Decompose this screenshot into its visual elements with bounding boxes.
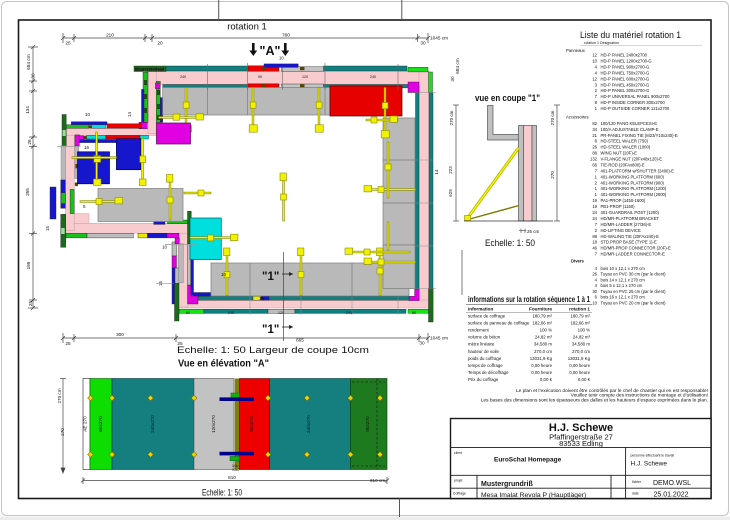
svg-text:10: 10: [162, 245, 168, 250]
svg-text:88: 88: [592, 234, 597, 239]
svg-text:25: 25: [65, 341, 71, 346]
svg-text:10: 10: [85, 112, 91, 117]
svg-text:PA1-PROP (1450-1600): PA1-PROP (1450-1600): [601, 198, 646, 203]
svg-text:810 cm: 810 cm: [370, 478, 385, 483]
svg-text:100/120 PANO KELEPCESI-E: 100/120 PANO KELEPCESI-E: [601, 121, 658, 126]
svg-text:401-WORKING PLATFORM (900): 401-WORKING PLATFORM (900): [601, 181, 665, 186]
svg-text:surface de coffrage: surface de coffrage: [468, 314, 506, 319]
svg-text:180,79 m²: 180,79 m²: [570, 314, 590, 319]
svg-text:240x270: 240x270: [306, 415, 311, 433]
svg-text:Panneaux: Panneaux: [566, 48, 586, 53]
svg-text:HD-P INSIDE CORNER 300x2700: HD-P INSIDE CORNER 300x2700: [601, 100, 666, 105]
svg-text:Divers: Divers: [571, 259, 584, 264]
svg-text:Echelle: 1: 50: Echelle: 1: 50: [485, 238, 535, 248]
svg-text:25.01.2022: 25.01.2022: [653, 491, 688, 498]
svg-text:255: 255: [25, 188, 30, 196]
svg-text:0,00 heure: 0,00 heure: [569, 363, 590, 368]
svg-text:223: 223: [448, 166, 453, 174]
svg-text:26: 26: [27, 139, 32, 145]
svg-text:30: 30: [420, 41, 426, 46]
svg-text:30: 30: [419, 341, 425, 346]
svg-text:Tuyau en PVC 20 cm (par le cli: Tuyau en PVC 20 cm (par le client): [601, 301, 667, 306]
svg-text:date: date: [632, 492, 639, 496]
svg-text:240: 240: [228, 311, 234, 315]
svg-text:HD-P OUTSIDE CORNER 121x2700: HD-P OUTSIDE CORNER 121x2700: [601, 106, 670, 111]
svg-text:information: information: [468, 307, 493, 312]
svg-text:401-WORKING PLATFORM (600): 401-WORKING PLATFORM (600): [601, 175, 665, 180]
svg-text:182,66 m²: 182,66 m²: [532, 321, 552, 326]
svg-text:90: 90: [258, 75, 262, 79]
svg-text:240: 240: [346, 311, 352, 315]
svg-text:240: 240: [180, 75, 186, 79]
svg-text:90x270: 90x270: [249, 416, 254, 432]
svg-text:684 cm: 684 cm: [455, 58, 460, 73]
svg-text:temps de coffrage: temps de coffrage: [468, 363, 503, 368]
svg-text:240x270: 240x270: [150, 415, 155, 433]
svg-text:Tuyau en PVC 30 cm (par le cli: Tuyau en PVC 30 cm (par le client): [601, 272, 667, 277]
svg-text:100 %: 100 %: [540, 328, 552, 333]
svg-text:88: 88: [592, 151, 597, 156]
svg-text:30: 30: [31, 73, 36, 79]
svg-text:46: 46: [592, 246, 597, 251]
svg-text:810: 810: [228, 475, 236, 480]
svg-text:EuroSchal: EuroSchal: [135, 68, 164, 72]
svg-text:34,580 m: 34,580 m: [534, 342, 552, 347]
svg-text:14: 14: [434, 169, 439, 175]
svg-text:120: 120: [278, 311, 284, 315]
svg-text:surface du panneau de coffrage: surface du panneau de coffrage: [468, 321, 530, 326]
svg-text:34: 34: [592, 127, 597, 132]
svg-text:Le plan et l’exécution doivent: Le plan et l’exécution doivent être cont…: [516, 388, 708, 394]
svg-text:182,66 m²: 182,66 m²: [570, 321, 590, 326]
svg-text:30: 30: [592, 289, 597, 294]
svg-text:V-FLANGE NUT (20Fx48x120)-E: V-FLANGE NUT (20Fx48x120)-E: [601, 157, 663, 162]
svg-text:401-PLATFORM w/SHUTTER (2400)-: 401-PLATFORM w/SHUTTER (2400)-E: [601, 169, 675, 174]
svg-text:personne effectuant le travail: personne effectuant le travail: [631, 454, 675, 458]
svg-text:13031,9 Kg: 13031,9 Kg: [568, 356, 591, 361]
svg-text:1045 cm: 1045 cm: [430, 36, 448, 41]
svg-text:210: 210: [106, 33, 114, 38]
svg-text:Veuillez tenir compte des inst: Veuillez tenir compte des instructions d…: [571, 393, 708, 399]
svg-text:0,00 €: 0,00 €: [578, 377, 591, 382]
svg-text:26: 26: [592, 145, 597, 150]
svg-text:bois 5 x 12,1 x 270 cm: bois 5 x 12,1 x 270 cm: [601, 283, 643, 288]
svg-text:HD-LIFTING DEVICE: HD-LIFTING DEVICE: [601, 228, 641, 233]
svg-text:vue en coupe "1": vue en coupe "1": [475, 93, 540, 104]
svg-text:informations sur la rotation: informations sur la rotation séquence 1 …: [468, 294, 590, 304]
svg-text:12: 12: [592, 77, 597, 82]
svg-text:401-WORKING PLATFORM (1200): 401-WORKING PLATFORM (1200): [601, 186, 667, 191]
svg-text:60x270: 60x270: [98, 416, 103, 432]
svg-text:HD-P PANEL 300x2700-G: HD-P PANEL 300x2700-G: [601, 88, 650, 93]
svg-text:HD-P PANEL 750x2700-G: HD-P PANEL 750x2700-G: [601, 71, 650, 76]
svg-text:fichier: fichier: [632, 480, 642, 484]
svg-text:13031,9 Kg: 13031,9 Kg: [530, 356, 553, 361]
svg-text:60: 60: [186, 311, 190, 315]
svg-text:Liste du matériel rotation 1: Liste du matériel rotation 1: [580, 30, 681, 41]
svg-text:180,79 m²: 180,79 m²: [532, 314, 552, 319]
svg-text:HD-P PANEL 450x2700-G: HD-P PANEL 450x2700-G: [601, 83, 650, 88]
svg-text:HD/MR-PLATFORM BRACKET: HD/MR-PLATFORM BRACKET: [601, 216, 660, 221]
svg-text:1045 cm: 1045 cm: [430, 336, 448, 341]
svg-text:mètre linéaire: mètre linéaire: [468, 342, 495, 347]
svg-text:HD/MR-LADDER (27/36)-E: HD/MR-LADDER (27/36)-E: [601, 222, 652, 227]
svg-text:300: 300: [116, 332, 124, 337]
svg-text:15: 15: [45, 225, 50, 231]
svg-text:100 %: 100 %: [578, 328, 590, 333]
svg-text:HD-P UNIVERSAL PANEL 900x2700: HD-P UNIVERSAL PANEL 900x2700: [601, 94, 671, 99]
svg-text:10: 10: [592, 59, 597, 64]
svg-text:Echelle: 1: 50 Largeur de co: Echelle: 1: 50 Largeur de coupe 10cm: [177, 345, 369, 356]
svg-text:client: client: [454, 451, 462, 455]
svg-text:Accessoires: Accessoires: [566, 115, 589, 120]
svg-text:60: 60: [412, 311, 416, 315]
svg-text:270: 270: [550, 171, 555, 179]
svg-text:30: 30: [450, 76, 455, 82]
svg-text:0,00 €: 0,00 €: [540, 377, 553, 382]
svg-text:24,82 m³: 24,82 m³: [573, 335, 591, 340]
svg-text:629: 629: [448, 189, 453, 197]
svg-text:0,00 heure: 0,00 heure: [531, 363, 552, 368]
svg-text:401-WORKING PLATFORM (2000): 401-WORKING PLATFORM (2000): [601, 192, 667, 197]
svg-text:25 cm: 25 cm: [527, 229, 540, 234]
svg-text:132: 132: [590, 157, 598, 162]
svg-text:HD-P PANEL 1200x2700-G: HD-P PANEL 1200x2700-G: [601, 59, 652, 64]
svg-text:66: 66: [592, 163, 597, 168]
svg-text:270: 270: [60, 428, 65, 436]
svg-text:270 cm: 270 cm: [550, 110, 555, 125]
svg-text:bois 10 x 12,1 x 270 cm: bois 10 x 12,1 x 270 cm: [601, 266, 646, 271]
svg-text:AE 270: AE 270: [83, 416, 88, 432]
svg-text:Tuyau en PVC 25 cm (par le cli: Tuyau en PVC 25 cm (par le client): [601, 289, 667, 294]
svg-text:10: 10: [221, 272, 227, 277]
svg-text:10: 10: [279, 56, 284, 61]
svg-text:14: 14: [127, 111, 132, 117]
svg-text:15: 15: [84, 145, 90, 150]
svg-text:HD-P PANEL 600x2700-G: HD-P PANEL 600x2700-G: [601, 77, 650, 82]
svg-text:760: 760: [282, 33, 290, 38]
svg-text:PR-PANEL FIXING TIE (M23/Y10x2: PR-PANEL FIXING TIE (M23/Y10x240)-E: [601, 133, 678, 138]
svg-text:25: 25: [28, 301, 33, 307]
svg-text:H.J. Schewe: H.J. Schewe: [631, 461, 668, 468]
svg-text:90x270: 90x270: [365, 416, 370, 432]
svg-text:0,00 heure: 0,00 heure: [531, 370, 552, 375]
svg-text:14x: 14x: [232, 464, 238, 468]
svg-text:665: 665: [296, 338, 304, 343]
svg-text:684 cm: 684 cm: [26, 54, 31, 69]
svg-text:HD/MR-LADDER CONNECTOR-E: HD/MR-LADDER CONNECTOR-E: [601, 252, 666, 257]
svg-text:Temps de décoffrage: Temps de décoffrage: [468, 370, 509, 375]
svg-text:83533 Edling: 83533 Edling: [559, 439, 603, 448]
svg-text:12: 12: [592, 53, 597, 58]
svg-text:24: 24: [592, 216, 597, 221]
svg-text:rotation 1 Désignation: rotation 1 Désignation: [584, 41, 619, 45]
svg-text:bois 14 x 12,1 x 270 cm: bois 14 x 12,1 x 270 cm: [601, 278, 646, 283]
svg-text:401-GUARDRAIL POST (1200): 401-GUARDRAIL POST (1200): [601, 210, 660, 215]
svg-text:270,0 cm: 270,0 cm: [534, 349, 552, 354]
svg-text:Echelle: 1: 50: Echelle: 1: 50: [202, 488, 242, 498]
svg-text:Prix du coffrage: Prix du coffrage: [468, 377, 499, 382]
svg-text:hauteur de voile: hauteur de voile: [468, 349, 499, 354]
svg-text:projet: projet: [454, 479, 463, 483]
svg-text:24,82 m³: 24,82 m³: [535, 335, 553, 340]
svg-text:19: 19: [592, 204, 597, 209]
svg-text:26: 26: [592, 272, 597, 277]
svg-text:"A": "A": [260, 44, 281, 58]
svg-text:Les bases des dimensions sont: Les bases des dimensions sont les épaiss…: [481, 397, 708, 403]
svg-text:WING NUT (20F)-E: WING NUT (20F)-E: [601, 151, 638, 156]
svg-text:19: 19: [592, 198, 597, 203]
svg-text:Vue en élévation "A": Vue en élévation "A": [178, 359, 269, 370]
svg-text:Coffrage: Coffrage: [453, 492, 466, 496]
svg-text:195: 195: [26, 261, 31, 269]
svg-text:100/A ADJUSTABLE CLAMP-E: 100/A ADJUSTABLE CLAMP-E: [601, 127, 659, 132]
svg-text:10: 10: [592, 301, 597, 306]
svg-text:0,00 heure: 0,00 heure: [569, 370, 590, 375]
svg-text:134: 134: [25, 106, 30, 114]
svg-text:15x0: 15x0: [232, 468, 239, 472]
svg-text:15: 15: [259, 296, 265, 301]
svg-text:EuroSchal Homepage: EuroSchal Homepage: [494, 457, 562, 464]
svg-text:Mesa Imalat Revola P (Hauptläg: Mesa Imalat Revola P (Hauptläger): [481, 492, 586, 499]
svg-text:21: 21: [592, 133, 597, 138]
svg-text:PB1-PROP (1150): PB1-PROP (1150): [601, 204, 636, 209]
svg-text:rendement: rendement: [468, 328, 490, 333]
svg-text:poids du coffrage: poids du coffrage: [468, 356, 502, 361]
svg-text:rotation 1: rotation 1: [227, 22, 267, 33]
svg-text:120: 120: [302, 75, 308, 79]
svg-text:82: 82: [592, 121, 597, 126]
svg-text:"1": "1": [262, 271, 279, 283]
svg-text:volume de béton: volume de béton: [468, 335, 501, 340]
svg-text:270 cm: 270 cm: [57, 388, 62, 403]
svg-text:DEMO.WSL: DEMO.WSL: [653, 480, 691, 487]
svg-text:270,0 cm: 270,0 cm: [572, 349, 590, 354]
svg-text:STD.PROP BASE (TYPE 1)-E: STD.PROP BASE (TYPE 1)-E: [601, 240, 657, 245]
svg-text:20: 20: [157, 41, 163, 46]
svg-text:HD-STEEL WALER (750): HD-STEEL WALER (750): [601, 139, 649, 144]
svg-text:34,580 m: 34,580 m: [572, 342, 590, 347]
svg-text:270 cm: 270 cm: [449, 110, 454, 125]
svg-text:HD-STEEL WALER (1000): HD-STEEL WALER (1000): [601, 145, 651, 150]
svg-text:TIE-ROD (20FAx800)-E: TIE-ROD (20FAx800)-E: [601, 163, 645, 168]
svg-text:120x270: 120x270: [211, 415, 216, 433]
svg-text:"1": "1": [262, 324, 279, 336]
svg-text:18: 18: [592, 240, 597, 245]
svg-text:24: 24: [592, 210, 597, 215]
svg-text:Mustergrundriß: Mustergrundriß: [481, 481, 533, 488]
svg-text:HD-P PANEL 900x2700-G: HD-P PANEL 900x2700-G: [601, 65, 650, 70]
svg-text:25: 25: [65, 41, 71, 46]
svg-text:240: 240: [370, 75, 376, 79]
svg-text:rotation 1: rotation 1: [569, 307, 590, 312]
svg-text:HD-WALING TIE (20FAx240)-E: HD-WALING TIE (20FAx240)-E: [601, 234, 660, 239]
svg-text:HD-P PANEL 2400x2700: HD-P PANEL 2400x2700: [601, 53, 648, 58]
svg-text:Fourniture: Fourniture: [529, 307, 552, 312]
svg-text:HD/MR-PROP CONNECTOR (20F)-E: HD/MR-PROP CONNECTOR (20F)-E: [601, 246, 672, 251]
svg-text:bois 16 x 12,1 x 270 cm: bois 16 x 12,1 x 270 cm: [601, 295, 646, 300]
